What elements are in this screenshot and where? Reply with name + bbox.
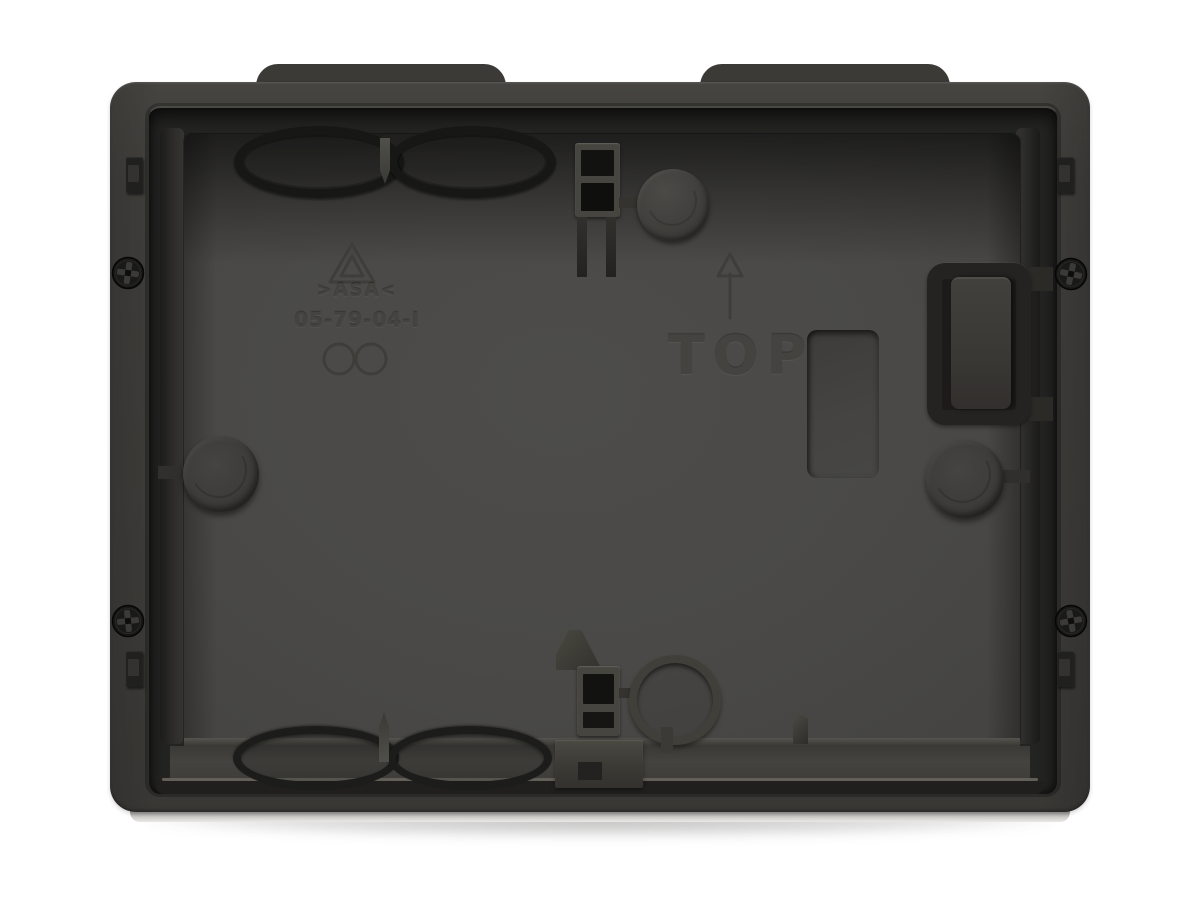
top-latch-hole-2	[581, 183, 614, 211]
bottom-cable-knockout-left	[233, 726, 399, 790]
up-arrow-icon	[708, 250, 752, 322]
wall-notch-top-right	[1057, 157, 1074, 193]
right-plug-arm	[1000, 470, 1030, 483]
mold-code-text: 05-79-04-I	[262, 308, 452, 332]
top-knockout-disc	[637, 169, 709, 241]
back-plate	[184, 134, 1020, 746]
bottom-latch-rail	[577, 666, 620, 736]
top-latch-arm	[619, 197, 638, 208]
right-latch-stub-bottom	[1029, 397, 1053, 421]
bottom-ring-stem	[661, 727, 673, 753]
bottom-latch-hole-2	[583, 712, 614, 728]
right-latch-button	[951, 277, 1011, 409]
bottom-pedestal	[555, 740, 643, 788]
wall-notch-bottom-right	[1057, 651, 1074, 687]
screw-bottom-right	[1052, 602, 1090, 640]
screw-bottom-left	[109, 602, 147, 640]
top-latch-leg-left	[577, 217, 587, 277]
left-wall-bevel	[160, 128, 184, 744]
orientation-label-text: TOP	[656, 324, 826, 387]
top-latch-leg-right	[606, 217, 616, 277]
wall-notch-bottom-left	[126, 651, 143, 687]
top-latch-hole-1	[581, 150, 614, 176]
product-photo-canvas: { "scene": { "subject": "Anthracite flus…	[0, 0, 1200, 900]
top-cable-knockout-right	[388, 126, 556, 198]
pedestal-notch	[578, 762, 602, 780]
top-cable-knockout-left	[234, 126, 404, 198]
left-knockout-plug	[183, 436, 259, 512]
bottom-knockout-ring	[629, 655, 721, 745]
right-knockout-plug	[926, 440, 1004, 518]
material-code-text: >ASA<	[292, 280, 422, 301]
mold-circles-icon	[316, 338, 394, 380]
screw-top-left	[109, 254, 147, 292]
right-latch-stub-top	[1029, 267, 1053, 291]
screw-top-right	[1052, 255, 1090, 293]
wall-notch-top-left	[126, 157, 143, 193]
top-latch-rail	[575, 143, 620, 217]
bottom-cable-knockout-right	[388, 726, 552, 790]
bottom-latch-hole-1	[583, 674, 614, 704]
